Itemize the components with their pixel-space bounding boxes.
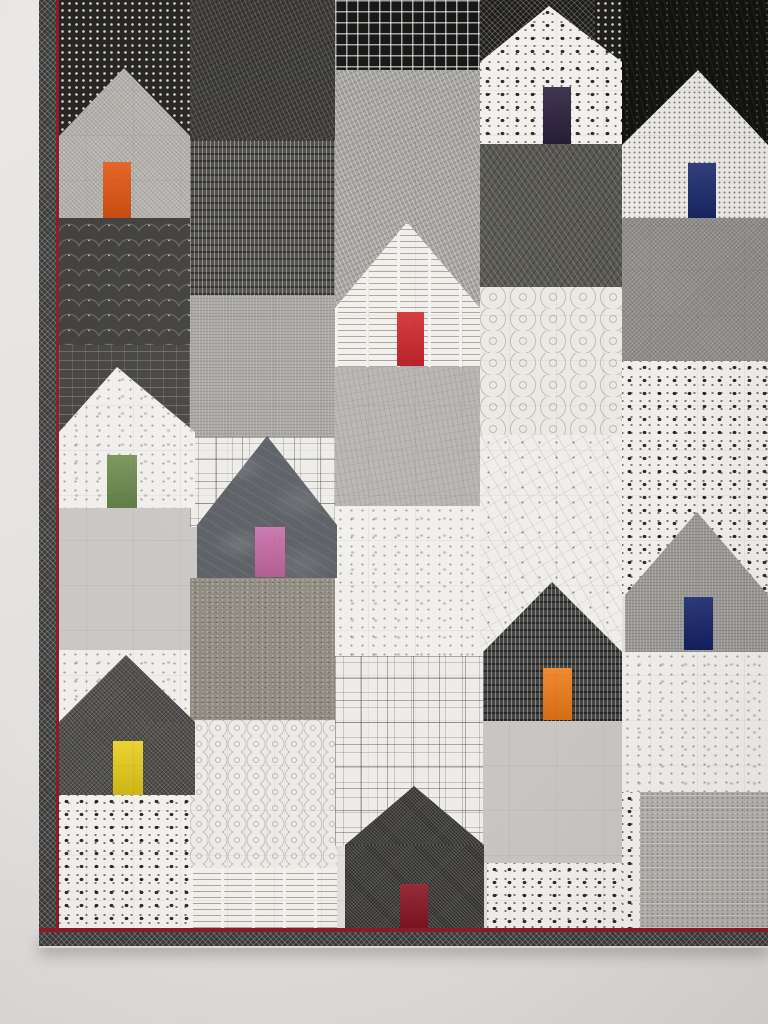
block-light-gray-bottom <box>483 721 627 863</box>
block-dark-stitch-block <box>480 144 627 287</box>
block-square-dot-bottom-left <box>59 795 190 928</box>
house-orange-door <box>103 162 131 218</box>
block-dark-basket-weave <box>190 0 335 140</box>
house-plum-door <box>543 87 571 144</box>
block-white-splatter-right <box>622 652 768 792</box>
block-black-windowpane-grid <box>335 0 483 70</box>
block-gray-crosshatch-right <box>622 218 768 361</box>
block-taupe-tweed <box>190 578 337 720</box>
quilt-blocks <box>0 0 768 946</box>
block-square-dot-bottom-mid <box>487 863 627 928</box>
block-ring-print <box>190 720 337 868</box>
block-square-dot-sliver <box>622 792 640 928</box>
piping-bottom <box>39 928 768 932</box>
block-light-gray-left <box>59 508 200 650</box>
house-red-door <box>397 312 424 366</box>
house-navy-door <box>688 163 716 218</box>
block-white-splatter-mid <box>335 506 483 656</box>
house-tangerine-door <box>543 668 572 720</box>
photo-of-quilt-on-wall <box>0 0 768 1024</box>
block-gray-linen-mid <box>190 295 335 437</box>
quilt <box>0 0 768 946</box>
block-text-print-bottom <box>190 868 337 928</box>
house-green-door <box>107 455 137 508</box>
house-yellow-door <box>113 741 143 795</box>
block-clamshell-black <box>59 218 190 345</box>
house-blue-door <box>684 597 713 650</box>
piping-left <box>56 0 59 934</box>
binding-left <box>39 0 56 946</box>
house-pink-door <box>255 527 285 577</box>
block-gray-sketch <box>335 367 483 506</box>
block-swirl-print <box>480 287 627 435</box>
house-maroon-door <box>400 884 428 928</box>
binding-bottom <box>39 932 768 946</box>
block-tally-dash-dark <box>190 140 335 295</box>
block-gray-lace <box>640 792 768 928</box>
